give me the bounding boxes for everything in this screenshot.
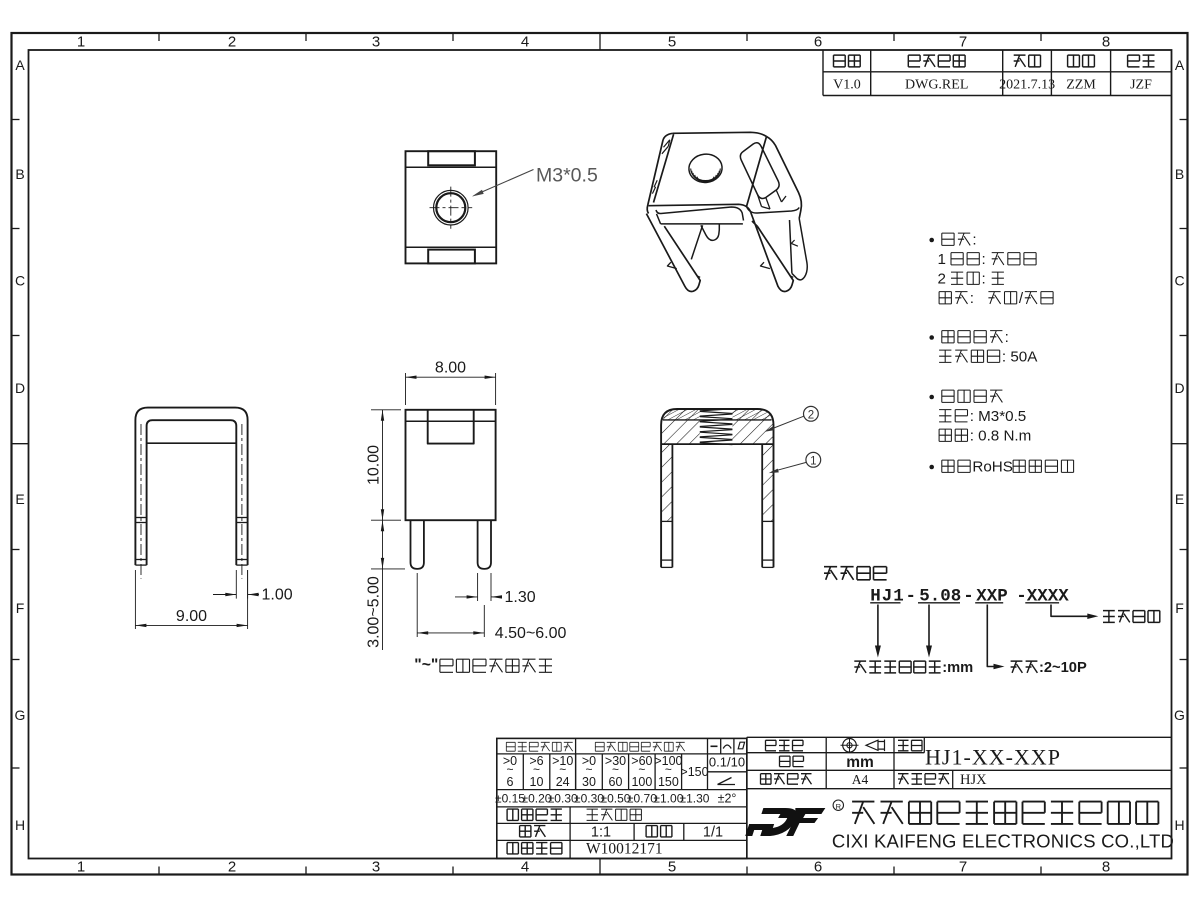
svg-text:F: F	[1175, 600, 1184, 616]
svg-text:3.00~5.00: 3.00~5.00	[366, 576, 383, 648]
svg-text:5: 5	[668, 34, 676, 51]
svg-text::: :	[982, 271, 990, 288]
svg-text:E: E	[1175, 491, 1184, 507]
svg-text:: 50A: : 50A	[1002, 349, 1038, 366]
svg-text:24: 24	[556, 775, 570, 789]
svg-text:: 0.8 N.m: : 0.8 N.m	[970, 428, 1032, 445]
svg-text::: :	[982, 251, 990, 268]
svg-text:-: -	[963, 586, 974, 606]
svg-text:2: 2	[228, 859, 236, 876]
svg-text:1: 1	[938, 251, 951, 268]
svg-text:30: 30	[582, 775, 596, 789]
svg-text:A: A	[15, 57, 25, 73]
svg-text:G: G	[1174, 707, 1185, 723]
svg-text:D: D	[15, 380, 25, 396]
svg-text:8: 8	[1102, 34, 1110, 51]
svg-text:2: 2	[228, 34, 236, 51]
svg-text:2: 2	[938, 271, 951, 288]
svg-text:6: 6	[814, 859, 822, 876]
svg-text:HJX: HJX	[960, 772, 987, 788]
svg-text:F: F	[16, 600, 25, 616]
svg-text:C: C	[1174, 273, 1184, 289]
svg-text:B: B	[1175, 166, 1184, 182]
svg-text:H: H	[1174, 817, 1184, 833]
svg-text:-: -	[906, 586, 917, 606]
svg-text:1:1: 1:1	[591, 824, 611, 840]
svg-text:4: 4	[521, 859, 529, 876]
svg-text:C: C	[15, 273, 25, 289]
svg-text:1/1: 1/1	[703, 825, 723, 841]
svg-text:2: 2	[808, 409, 814, 421]
svg-text:10: 10	[530, 775, 544, 789]
svg-text:1.30: 1.30	[505, 589, 536, 606]
svg-text:>150: >150	[680, 765, 708, 779]
svg-text:0.1/10: 0.1/10	[709, 755, 745, 770]
svg-text:CIXI KAIFENG ELECTRONICS CO.,L: CIXI KAIFENG ELECTRONICS CO.,LTD	[832, 831, 1174, 852]
svg-text:R: R	[836, 802, 842, 811]
svg-text:6: 6	[507, 775, 514, 789]
svg-text:150: 150	[658, 775, 679, 789]
svg-text:100: 100	[631, 775, 652, 789]
svg-text::: :	[1005, 329, 1013, 346]
svg-text:B: B	[15, 166, 24, 182]
svg-text:mm: mm	[846, 754, 874, 771]
svg-text:DWG.REL: DWG.REL	[905, 78, 968, 93]
svg-text:1: 1	[77, 34, 85, 51]
svg-text:1: 1	[77, 859, 85, 876]
svg-text:3: 3	[372, 34, 380, 51]
svg-text:10.00: 10.00	[366, 445, 383, 485]
svg-text:E: E	[15, 491, 24, 507]
svg-text:H: H	[15, 817, 25, 833]
svg-text:M3*0.5: M3*0.5	[536, 165, 598, 187]
svg-text:±1.30: ±1.30	[680, 792, 710, 806]
svg-text:4.50~6.00: 4.50~6.00	[495, 625, 567, 642]
svg-text:1.00: 1.00	[262, 587, 293, 604]
svg-text:±2°: ±2°	[718, 792, 737, 806]
svg-text:1: 1	[810, 455, 816, 467]
svg-text:V1.0: V1.0	[833, 78, 861, 93]
svg-text:"~": "~"	[414, 656, 438, 673]
svg-text:2021.7.13: 2021.7.13	[999, 78, 1055, 93]
svg-text:7: 7	[959, 34, 967, 51]
svg-text:JZF: JZF	[1130, 78, 1152, 93]
svg-text:8: 8	[1102, 859, 1110, 876]
svg-text:D: D	[1174, 380, 1184, 396]
svg-text:3: 3	[372, 859, 380, 876]
svg-text::: :	[972, 232, 980, 249]
svg-text:: M3*0.5: : M3*0.5	[970, 408, 1027, 425]
svg-text:6: 6	[814, 34, 822, 51]
svg-text::2~10P: :2~10P	[1039, 660, 1087, 676]
svg-text:8.00: 8.00	[435, 360, 466, 377]
svg-text:HJ1-XX-XXP: HJ1-XX-XXP	[925, 745, 1061, 770]
svg-text:W10012171: W10012171	[586, 841, 663, 858]
svg-text:9.00: 9.00	[176, 608, 207, 625]
svg-text:RoHS: RoHS	[972, 459, 1013, 476]
svg-text:5: 5	[668, 859, 676, 876]
svg-text::: :	[970, 290, 987, 307]
svg-text::mm: :mm	[942, 660, 973, 676]
svg-text:A: A	[1175, 57, 1185, 73]
svg-text:7: 7	[959, 859, 967, 876]
svg-text:ZZM: ZZM	[1066, 78, 1096, 93]
svg-text:60: 60	[609, 775, 623, 789]
svg-text:A4: A4	[852, 772, 869, 787]
svg-text:4: 4	[521, 34, 529, 51]
svg-text:G: G	[15, 707, 26, 723]
